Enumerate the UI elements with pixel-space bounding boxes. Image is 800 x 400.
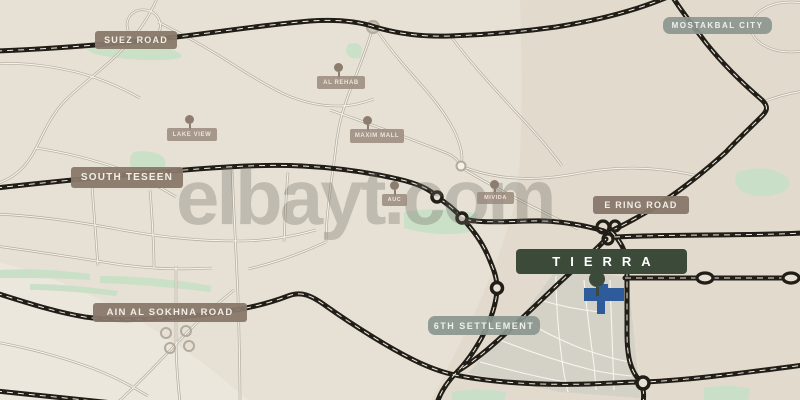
map-canvas: elbayt.com SUEZ ROAD SOUTH TESEEN AIN AL… [0,0,800,400]
road-label-suez-road: SUEZ ROAD [95,31,177,49]
al-rehab-pin-icon [334,63,343,72]
tierra-pin-icon [589,271,605,287]
mivida-pin-icon [490,180,499,189]
project-label-tierra: TIERRA [516,249,687,274]
road-label-ain-al-sokhna-road: AIN AL SOKHNA ROAD [93,303,247,322]
road-label-e-ring-road: E RING ROAD [593,196,689,214]
poi-label-mivida: MIVIDA [477,192,514,204]
road-label-south-teseen: SOUTH TESEEN [71,167,183,188]
district-label-6th-settlement: 6TH SETTLEMENT [428,316,540,335]
lake-view-pin-icon [185,115,194,124]
poi-label-al-rehab: AL REHAB [317,76,365,89]
poi-label-auc: AUC [382,194,407,206]
poi-label-maxim-mall: MAXIM MALL [350,129,404,143]
poi-label-lake-view: LAKE VIEW [167,128,217,141]
district-label-mostakbal-city: MOSTAKBAL CITY [663,17,772,34]
auc-pin-icon [390,181,399,190]
maxim-mall-pin-icon [363,116,372,125]
